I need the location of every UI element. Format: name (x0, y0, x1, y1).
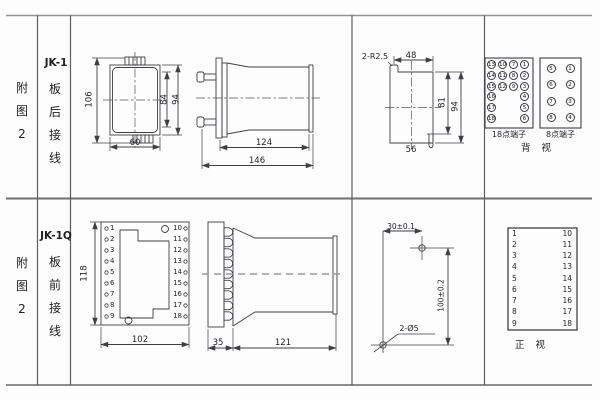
table-num: 15 (550, 286, 572, 294)
front-view-label: 正 视 (508, 341, 556, 351)
side-view-drawing (196, 58, 320, 169)
terminal: 8 (509, 71, 518, 80)
terminal: 10 (498, 60, 507, 69)
table-num: 2 (512, 241, 524, 249)
front-terminal-num: 7 (110, 291, 120, 298)
dim-100: 100±0.2 (437, 275, 446, 317)
terminal: 2 (566, 80, 575, 89)
wiring-char: 板 (48, 83, 62, 95)
table-num: 17 (550, 308, 572, 316)
table-num: 7 (512, 297, 524, 305)
terminal: 2 (520, 71, 529, 80)
fig-label-char: 图 (14, 280, 30, 292)
table-num: 8 (512, 308, 524, 316)
table-num: 9 (512, 320, 524, 328)
front-terminal-num: 17 (169, 302, 182, 309)
front-side-view-drawing (202, 222, 340, 351)
wiring-char: 前 (48, 279, 62, 291)
wiring-char: 线 (48, 325, 62, 337)
dim-35: 35 (210, 339, 226, 348)
terminal: 17 (487, 103, 496, 112)
terminal: 11 (498, 71, 507, 80)
wiring-char: 板 (48, 256, 62, 268)
front-terminal-num: 5 (110, 269, 120, 276)
wiring-char: 线 (48, 152, 62, 164)
terminal: 15 (487, 82, 496, 91)
back-view-label: 背 视 (514, 144, 562, 154)
table-num: 18 (550, 320, 572, 328)
dim-56: 56 (403, 146, 419, 155)
dim-holes: 2-Ø5 (394, 325, 424, 333)
table-num: 12 (550, 252, 572, 260)
front-terminal-num: 16 (169, 291, 182, 298)
front-terminal-num: 1 (110, 225, 120, 232)
terminal: 4 (566, 113, 575, 122)
front-terminal-num: 4 (110, 258, 120, 265)
terminal: 3 (566, 97, 575, 106)
dim-102: 102 (130, 336, 150, 345)
front-terminal-num: 8 (110, 302, 120, 309)
front-terminal-num: 14 (169, 269, 182, 276)
model-label: JK-1Q (37, 231, 75, 242)
table-num: 1 (512, 230, 524, 238)
front-terminal-num: 12 (169, 247, 182, 254)
dim-94: 94 (173, 92, 182, 108)
table-num: 4 (512, 263, 524, 271)
fig-label-char: 图 (14, 105, 30, 117)
dim-30: 30±0.1 (381, 223, 421, 231)
fig-label-char: 2 (14, 303, 30, 315)
table-num: 14 (550, 275, 572, 283)
front-terminal-num: 6 (110, 280, 120, 287)
terminal: 1 (566, 64, 575, 73)
wiring-char: 接 (48, 302, 62, 314)
dim-94b: 94 (452, 99, 461, 115)
terminal: 6 (520, 114, 529, 123)
terminal: 1 (520, 60, 529, 69)
model-label: JK-1 (41, 58, 71, 69)
fig-label-char: 2 (14, 128, 30, 140)
dim-118: 118 (81, 265, 90, 283)
dim-60: 60 (127, 139, 143, 148)
dim-84: 84 (161, 92, 170, 108)
terminal8-label: 8点端子 (539, 131, 582, 139)
front-terminal-num: 11 (169, 236, 182, 243)
terminal: 18 (487, 114, 496, 123)
fig-label-char: 附 (14, 257, 30, 269)
table-num: 16 (550, 297, 572, 305)
terminal: 8 (547, 113, 556, 122)
terminal: 12 (498, 82, 507, 91)
dim-81: 81 (439, 95, 448, 111)
terminal18-label: 18点端子 (486, 131, 532, 139)
table-num: 6 (512, 286, 524, 294)
front-terminal-num: 18 (169, 313, 182, 320)
terminal: 5 (547, 64, 556, 73)
table-num: 11 (550, 241, 572, 249)
terminal: 13 (487, 60, 496, 69)
table-num: 10 (550, 230, 572, 238)
fig-label-char: 附 (14, 82, 30, 94)
front-terminal-num: 10 (169, 225, 182, 232)
dim-106: 106 (86, 91, 95, 109)
terminal: 9 (509, 82, 518, 91)
terminal: 7 (547, 97, 556, 106)
wiring-char: 后 (48, 106, 62, 118)
wiring-char: 接 (48, 129, 62, 141)
terminal: 3 (520, 82, 529, 91)
front-terminal-num: 13 (169, 258, 182, 265)
terminal: 7 (509, 60, 518, 69)
dim-124: 124 (254, 139, 274, 148)
table-num: 13 (550, 263, 572, 271)
table-num: 5 (512, 275, 524, 283)
dim-48: 48 (403, 52, 419, 61)
dim-146: 146 (247, 157, 267, 166)
dim-121: 121 (273, 339, 293, 348)
front-terminal-num: 3 (110, 247, 120, 254)
figure-sheet: 附 图 2 JK-1 板 后 接 线 106 84 94 60 124 146 … (0, 0, 600, 400)
front-terminal-num: 15 (169, 280, 182, 287)
front-terminal-num: 2 (110, 236, 120, 243)
terminal: 6 (547, 80, 556, 89)
front-terminal-num: 9 (110, 313, 120, 320)
table-num: 3 (512, 252, 524, 260)
terminal: 14 (487, 71, 496, 80)
dim-radius: 2-R2.5 (359, 53, 391, 61)
